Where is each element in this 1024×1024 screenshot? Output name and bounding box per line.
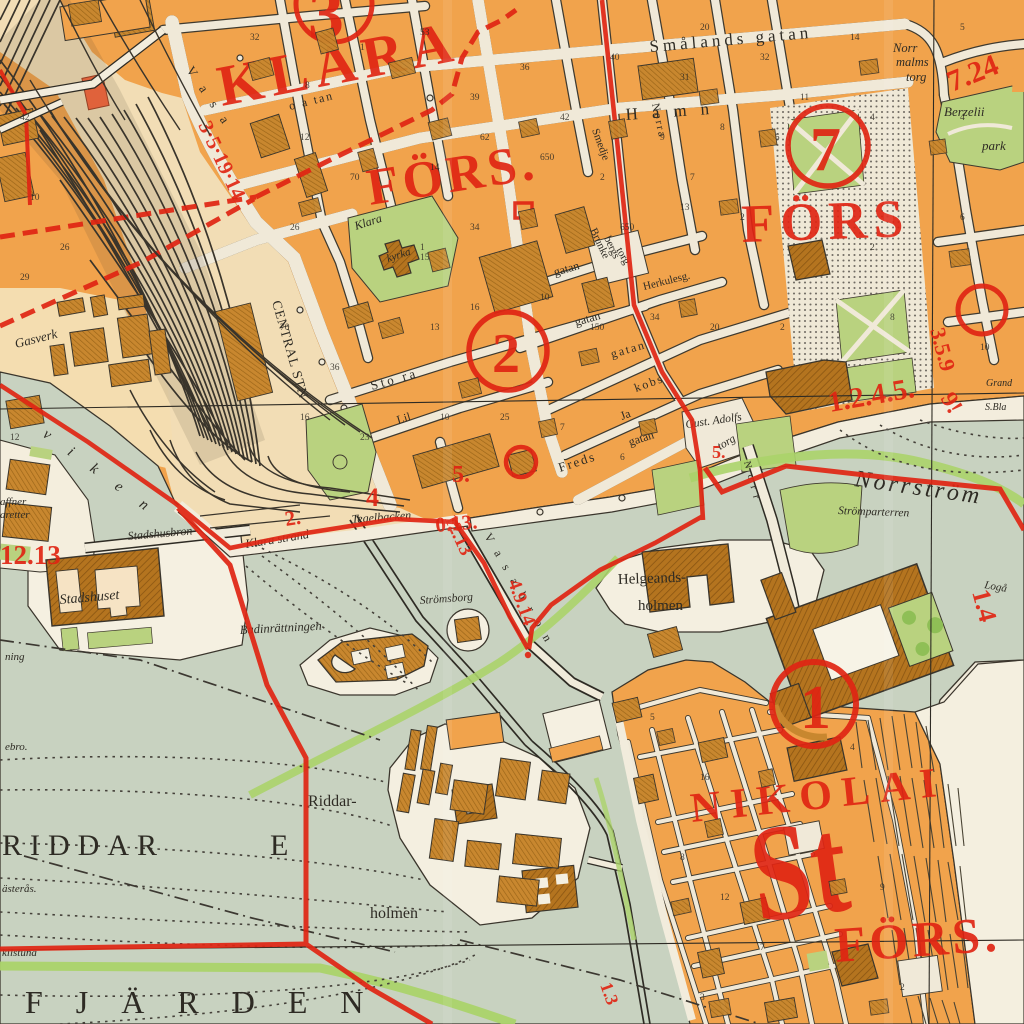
svg-text:ebro.: ebro. [5, 741, 28, 753]
svg-text:26: 26 [60, 243, 70, 253]
svg-text:8: 8 [680, 853, 685, 863]
svg-text:31: 31 [680, 73, 690, 83]
svg-text:70: 70 [280, 323, 290, 333]
svg-text:20: 20 [700, 23, 710, 33]
svg-text:Riddar-: Riddar- [308, 793, 357, 810]
svg-text:Strömparterren: Strömparterren [838, 505, 910, 519]
svg-text:7: 7 [690, 173, 695, 183]
svg-text:150: 150 [590, 323, 605, 333]
svg-text:malms: malms [896, 55, 929, 69]
svg-text:3: 3 [700, 993, 705, 1003]
svg-text:ning: ning [5, 651, 25, 663]
svg-text:7: 7 [760, 943, 765, 953]
svg-text:650: 650 [620, 223, 635, 233]
svg-text:1: 1 [800, 674, 831, 742]
svg-text:20: 20 [710, 323, 720, 333]
svg-text:8: 8 [305, 81, 310, 91]
svg-text:2: 2 [600, 173, 605, 183]
svg-text:12: 12 [10, 433, 20, 443]
svg-text:holmen: holmen [638, 598, 683, 614]
svg-text:FJÄRDEN: FJÄRDEN [25, 984, 396, 1020]
svg-text:2: 2 [740, 213, 745, 223]
svg-text:5.: 5. [712, 442, 726, 462]
svg-text:16: 16 [470, 303, 480, 313]
svg-text:23: 23 [360, 433, 370, 443]
svg-text:12.13: 12.13 [0, 540, 61, 570]
svg-text:9: 9 [660, 133, 665, 143]
svg-text:S.Bla: S.Bla [985, 402, 1006, 413]
svg-text:4: 4 [366, 483, 379, 512]
svg-text:34: 34 [470, 223, 480, 233]
svg-text:5.: 5. [452, 462, 470, 488]
svg-text:11: 11 [800, 93, 809, 103]
svg-text:ästerås.: ästerås. [2, 883, 37, 895]
svg-text:holmen: holmen [370, 905, 418, 922]
svg-text:2: 2 [492, 323, 520, 385]
svg-text:70: 70 [350, 173, 360, 183]
svg-text:2: 2 [780, 323, 785, 333]
svg-text:34: 34 [650, 313, 660, 323]
svg-text:2: 2 [900, 983, 905, 993]
svg-text:53: 53 [420, 28, 430, 38]
svg-text:13: 13 [680, 203, 690, 213]
svg-text:14: 14 [430, 163, 440, 173]
svg-text:12: 12 [300, 133, 310, 143]
svg-text:1: 1 [420, 243, 425, 253]
svg-text:10: 10 [540, 293, 550, 303]
svg-text:affner: affner [0, 496, 27, 508]
svg-text:torg: torg [906, 70, 926, 84]
svg-text:36: 36 [520, 63, 530, 73]
svg-text:5: 5 [650, 713, 655, 723]
svg-text:13: 13 [430, 323, 440, 333]
svg-text:aretter: aretter [0, 509, 30, 521]
svg-text:42: 42 [560, 113, 570, 123]
svg-text:29: 29 [20, 273, 30, 283]
svg-text:Helgeands-: Helgeands- [618, 570, 687, 588]
svg-text:RIDDAR: RIDDAR [2, 829, 165, 862]
svg-text:16: 16 [700, 773, 710, 783]
svg-text:4: 4 [870, 113, 875, 123]
svg-text:32: 32 [760, 53, 770, 63]
svg-text:36: 36 [330, 363, 340, 373]
svg-text:FÖRS.: FÖRS. [833, 906, 1002, 973]
svg-text:39: 39 [470, 93, 480, 103]
svg-text:park: park [981, 138, 1006, 153]
svg-text:6: 6 [620, 453, 625, 463]
svg-text:40: 40 [610, 53, 620, 63]
svg-text:5: 5 [960, 23, 965, 33]
svg-text:42: 42 [20, 113, 30, 123]
svg-text:10: 10 [980, 343, 990, 353]
svg-text:7: 7 [560, 423, 565, 433]
svg-text:Norr: Norr [892, 41, 917, 55]
svg-text:6: 6 [960, 213, 965, 223]
svg-text:62: 62 [480, 133, 490, 143]
svg-text:1: 1 [360, 43, 365, 53]
svg-text:10: 10 [30, 193, 40, 203]
svg-text:12: 12 [720, 893, 730, 903]
svg-text:650: 650 [540, 153, 555, 163]
svg-text:25: 25 [500, 413, 510, 423]
svg-text:32: 32 [250, 33, 260, 43]
svg-text:4: 4 [960, 113, 965, 123]
svg-text:4: 4 [850, 743, 855, 753]
svg-text:2: 2 [870, 243, 875, 253]
svg-text:26: 26 [290, 223, 300, 233]
svg-text:14: 14 [850, 33, 860, 43]
svg-text:7: 7 [810, 116, 841, 184]
svg-text:8: 8 [720, 123, 725, 133]
svg-text:16: 16 [300, 413, 310, 423]
svg-text:Grand: Grand [986, 378, 1013, 389]
svg-text:E: E [270, 829, 288, 862]
